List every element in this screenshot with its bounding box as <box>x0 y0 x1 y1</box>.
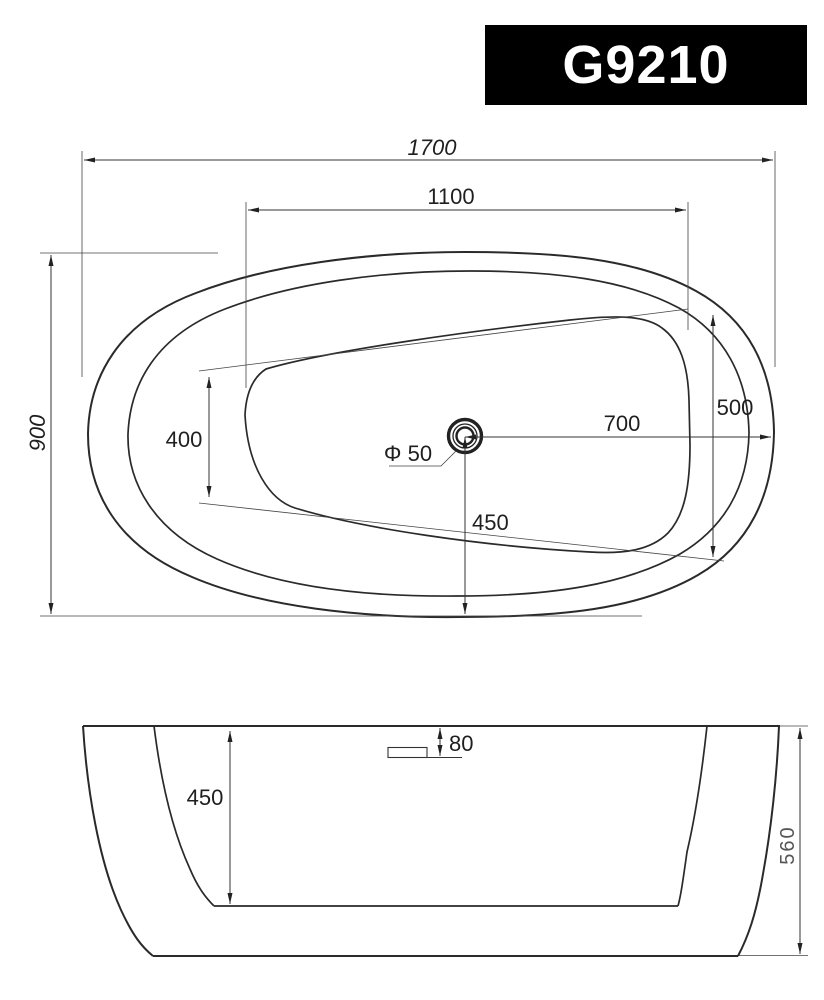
dim-drain-to-right: 700 <box>604 411 641 436</box>
ext-line <box>199 309 688 371</box>
ext-line <box>199 503 724 561</box>
dim-overall-height: 560 <box>777 825 799 864</box>
technical-drawing: 1700 1100 900 400 500 700 450 <box>0 0 824 1000</box>
dim-drain-to-bottom: 450 <box>472 510 509 535</box>
dim-basin-depth: 450 <box>187 785 224 810</box>
side-inner-right-wall <box>678 726 707 906</box>
dim-basin-length: 1100 <box>427 184 474 209</box>
dim-basin-width-left: 400 <box>166 427 203 452</box>
dim-drain-diameter: Φ 50 <box>384 441 432 466</box>
dim-overall-length: 1700 <box>408 135 458 160</box>
overflow-outlet <box>388 748 427 758</box>
side-outer-left-wall <box>83 726 153 956</box>
side-view: 80 450 560 <box>83 726 808 956</box>
tub-rim-inner-outline <box>128 271 749 596</box>
dim-basin-width-right: 500 <box>717 395 754 420</box>
dim-overall-width: 900 <box>25 414 50 451</box>
drawing-sheet: G9210 1700 <box>0 0 824 1000</box>
side-inner-left-wall <box>154 726 214 906</box>
top-view: 1700 1100 900 400 500 700 450 <box>25 135 775 617</box>
side-outer-right-wall <box>738 726 779 956</box>
dim-overflow-offset: 80 <box>449 731 473 756</box>
